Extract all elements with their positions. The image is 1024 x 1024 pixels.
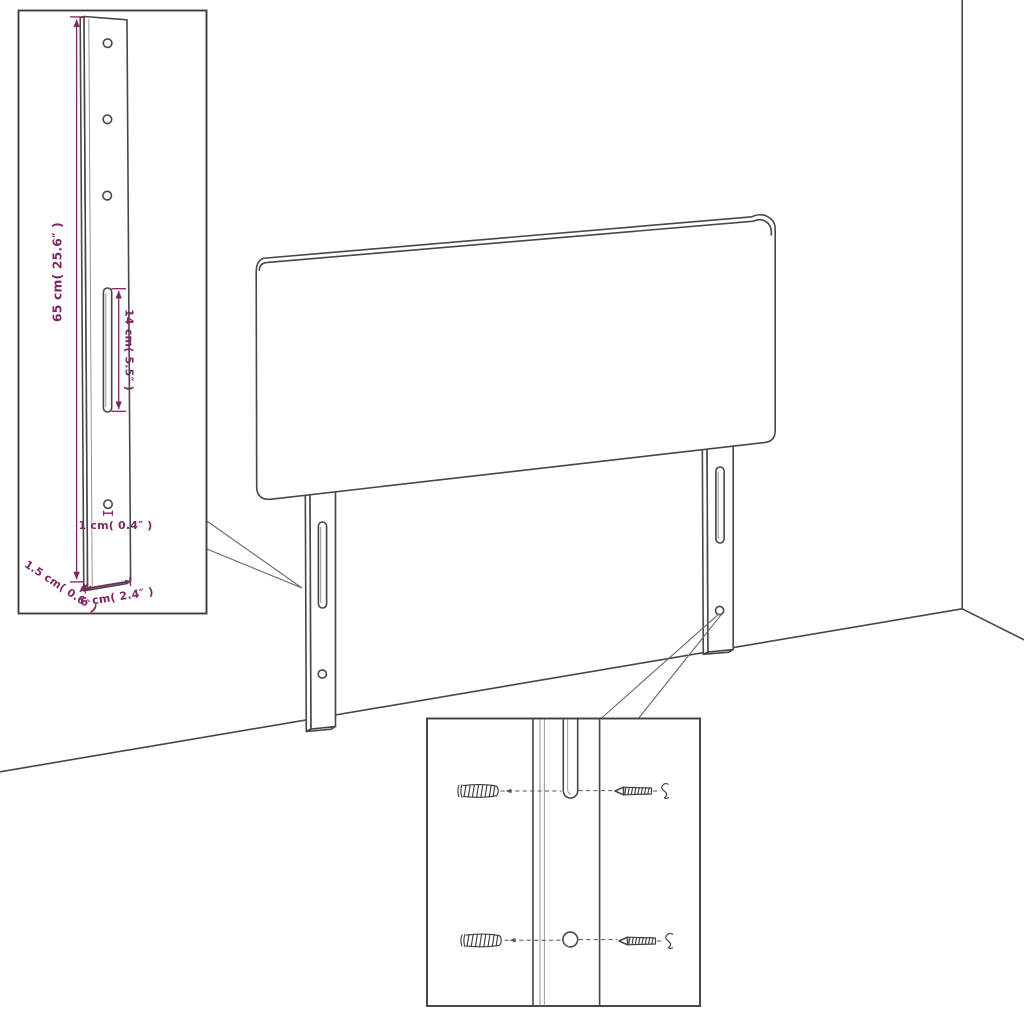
leg-hole-top <box>103 39 112 48</box>
assembly-diagram: 65 cm( 25.6″ ) 14 cm( 5.5″ ) 1 cm( 0.4″ … <box>0 0 1024 1024</box>
dim-14-label: 14 cm( 5.5″ ) <box>123 309 136 391</box>
slot-outline <box>318 522 326 608</box>
slot-outline <box>716 467 724 543</box>
dim-65-label: 65 cm( 25.6″ ) <box>51 222 65 322</box>
right-leg-slot <box>716 467 724 543</box>
leg-hole-middle <box>103 115 112 124</box>
left-leg-hole <box>318 670 326 678</box>
floor-wall-edge-right <box>962 609 1024 640</box>
left-leg-slot <box>318 522 326 608</box>
leg-detail-drawing <box>80 17 130 591</box>
leg-detail-inset: 65 cm( 25.6″ ) 14 cm( 5.5″ ) 1 cm( 0.4″ … <box>19 11 207 616</box>
leg-detail-callout-lines <box>207 521 302 588</box>
leg-small-hole <box>104 500 112 508</box>
right-leg-hole <box>716 606 724 614</box>
mounting-detail-inset <box>427 719 700 1007</box>
callout-leaders <box>207 521 722 719</box>
dim-1-label: 1 cm( 0.4″ ) <box>79 519 153 532</box>
diagram-canvas: 65 cm( 25.6″ ) 14 cm( 5.5″ ) 1 cm( 0.4″ … <box>0 0 1024 1024</box>
leg-hole-lower <box>103 191 112 200</box>
leg-slot <box>103 288 111 412</box>
